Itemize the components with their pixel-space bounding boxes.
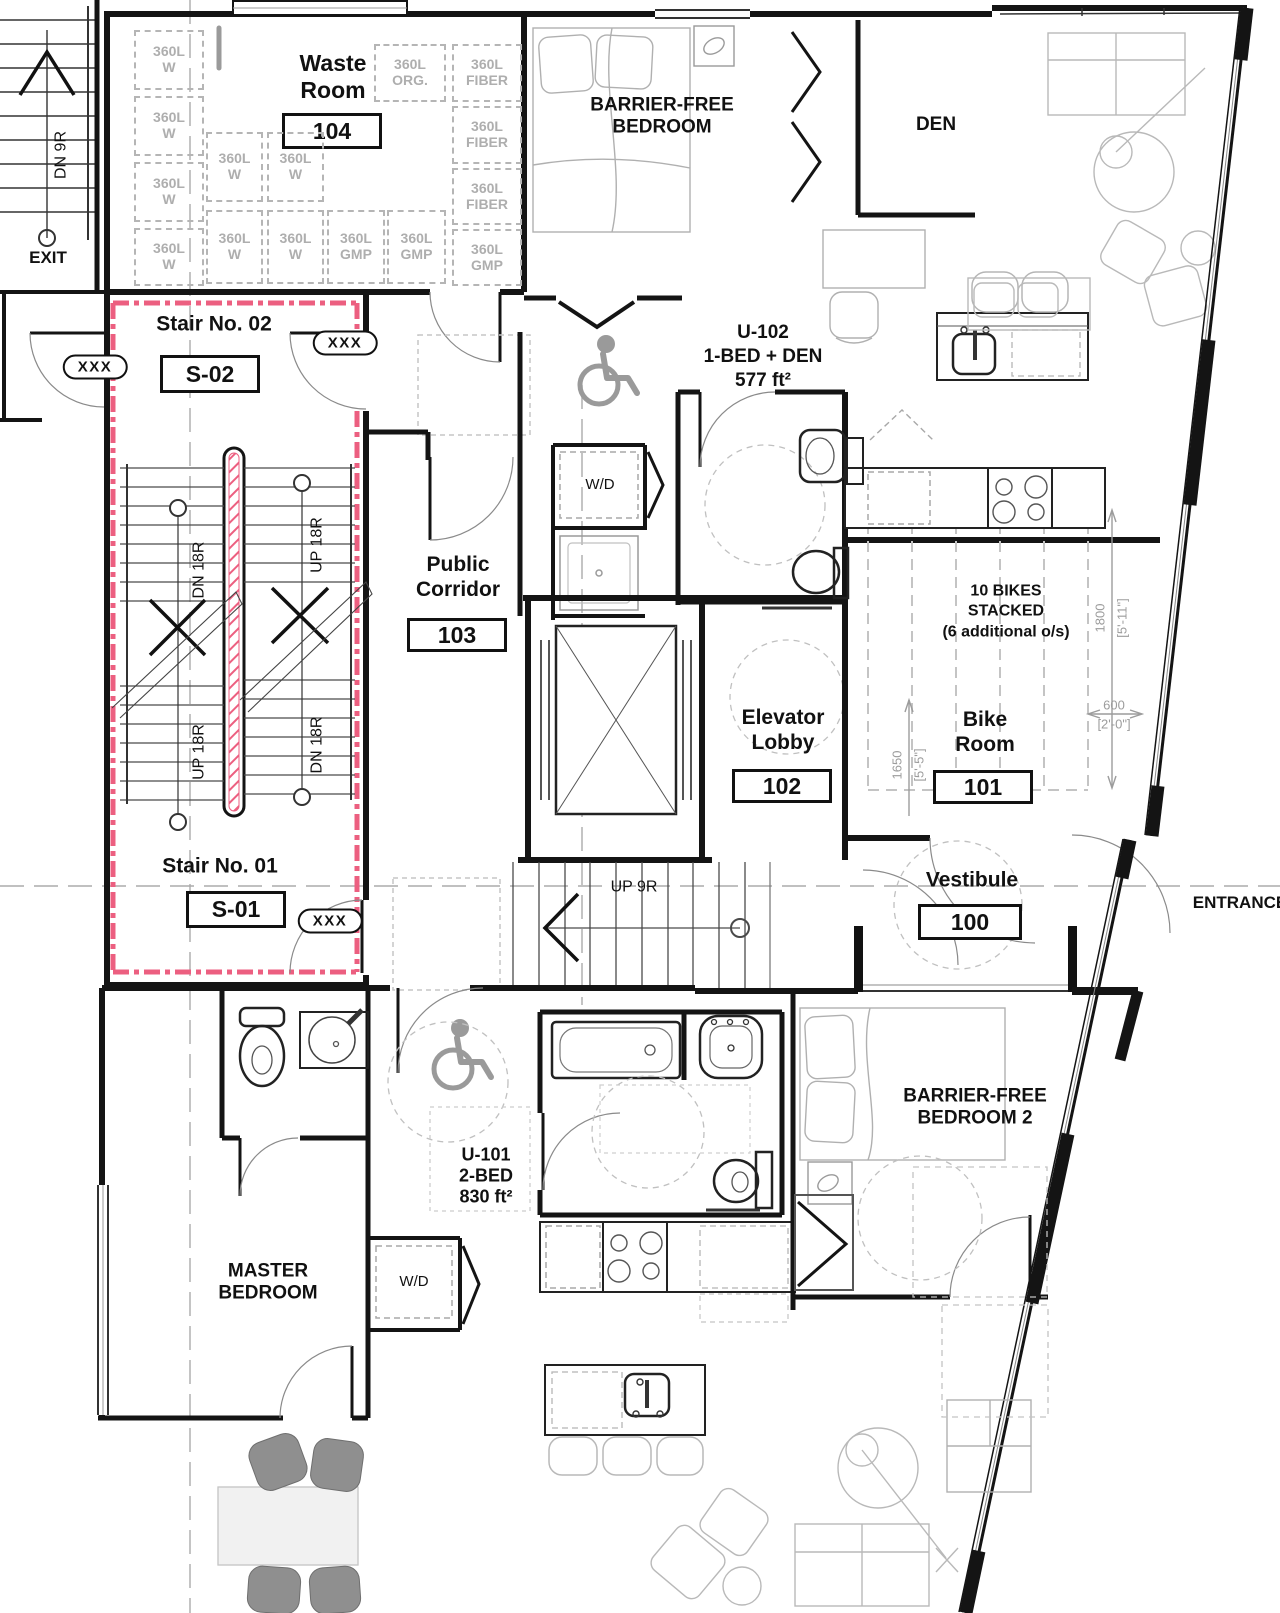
door-tag-stair01: XXX	[298, 909, 363, 934]
unit-u101-layout: 2-BED	[459, 1165, 513, 1186]
public-corridor-title: Public Corridor	[416, 553, 500, 603]
public-corridor-number: 103	[407, 618, 507, 652]
u102-wd-label: W/D	[585, 476, 614, 494]
entrance-label: ENTRANCE	[1193, 893, 1280, 913]
east-glazed-wall	[959, 7, 1247, 1613]
bike-room-number: 101	[933, 770, 1033, 804]
master-bedroom-label: MASTER BEDROOM	[218, 1261, 317, 1306]
bin-360l-w: 360L W	[134, 96, 204, 156]
bike-room-title: Bike Room	[955, 708, 1015, 758]
dn-18r-right-annotation: DN 18R	[309, 717, 328, 774]
bin-360l-w: 360L W	[267, 210, 324, 284]
bin-360l-gmp: 360L GMP	[452, 229, 522, 286]
stairwell	[30, 292, 372, 985]
stair-02-title: Stair No. 02	[156, 313, 272, 338]
stair-01-number: S-01	[186, 891, 286, 928]
unit-u102-area: 577 ft²	[735, 370, 791, 392]
bin-360l-w: 360L W	[206, 210, 263, 284]
dim-bike-clear-mm: 1650	[890, 751, 905, 780]
bin-360l-w: 360L W	[134, 228, 204, 286]
door-tag-stair02-left: XXX	[63, 355, 128, 380]
unit-u102-id: U-102	[737, 322, 789, 344]
elevator-lobby-number: 102	[732, 769, 832, 803]
vestibule-title: Vestibule	[926, 869, 1018, 894]
dim-bike-clear-imp: [5'-5"]	[912, 748, 927, 781]
unit-u102-layout: 1-BED + DEN	[704, 346, 823, 368]
barrier-free-bedroom-2-label: BARRIER-FREE BEDROOM 2	[903, 1086, 1047, 1131]
unit-u101-id: U-101	[461, 1144, 510, 1165]
bin-360l-w: 360L W	[134, 30, 204, 90]
barrier-free-bedroom-label: BARRIER-FREE BEDROOM	[590, 95, 734, 140]
dim-bike-width-mm: 600	[1103, 698, 1125, 713]
vestibule-number: 100	[918, 904, 1022, 940]
exit-label: EXIT	[29, 248, 67, 268]
bin-360l-w: 360L W	[267, 132, 324, 202]
bin-360l-fiber: 360L FIBER	[452, 168, 522, 225]
bike-note-line2: STACKED	[968, 603, 1044, 622]
bin-360l-gmp: 360L GMP	[387, 210, 446, 284]
bike-note-line1: 10 BIKES	[970, 583, 1041, 602]
dim-bike-depth-mm: 1800	[1093, 604, 1108, 633]
elevator-lobby-title: Elevator Lobby	[742, 706, 825, 756]
dim-bike-width-imp: [2'-0"]	[1097, 717, 1130, 732]
u101-wd-label: W/D	[399, 1273, 428, 1291]
up-18r-right-annotation: UP 18R	[309, 517, 328, 573]
bin-360l-gmp: 360L GMP	[327, 210, 385, 284]
bike-note-line3: (6 additional o/s)	[942, 624, 1069, 643]
unit-u101-area: 830 ft²	[459, 1186, 512, 1207]
den-label: DEN	[916, 114, 956, 136]
bin-360l-fiber: 360L FIBER	[452, 44, 522, 102]
dn-9r-annotation: DN 9R	[53, 131, 72, 179]
bin-360l-w: 360L W	[134, 162, 204, 222]
bin-360l-org: 360L ORG.	[374, 44, 446, 102]
bin-360l-fiber: 360L FIBER	[452, 106, 522, 164]
stair-02-number: S-02	[160, 355, 260, 393]
up-9r-annotation: UP 9R	[611, 879, 658, 898]
floor-plan: Waste Room 104 Stair No. 02 S-02 Stair N…	[0, 0, 1280, 1613]
up-18r-left-annotation: UP 18R	[191, 724, 210, 780]
stair-01-title: Stair No. 01	[162, 855, 278, 880]
bin-360l-w: 360L W	[206, 132, 263, 202]
waste-room-title: Waste Room	[300, 50, 367, 104]
door-tag-stair02-right: XXX	[313, 331, 378, 356]
dn-18r-left-annotation: DN 18R	[191, 542, 210, 599]
dim-bike-depth-imp: [5'-11"]	[1115, 598, 1130, 637]
